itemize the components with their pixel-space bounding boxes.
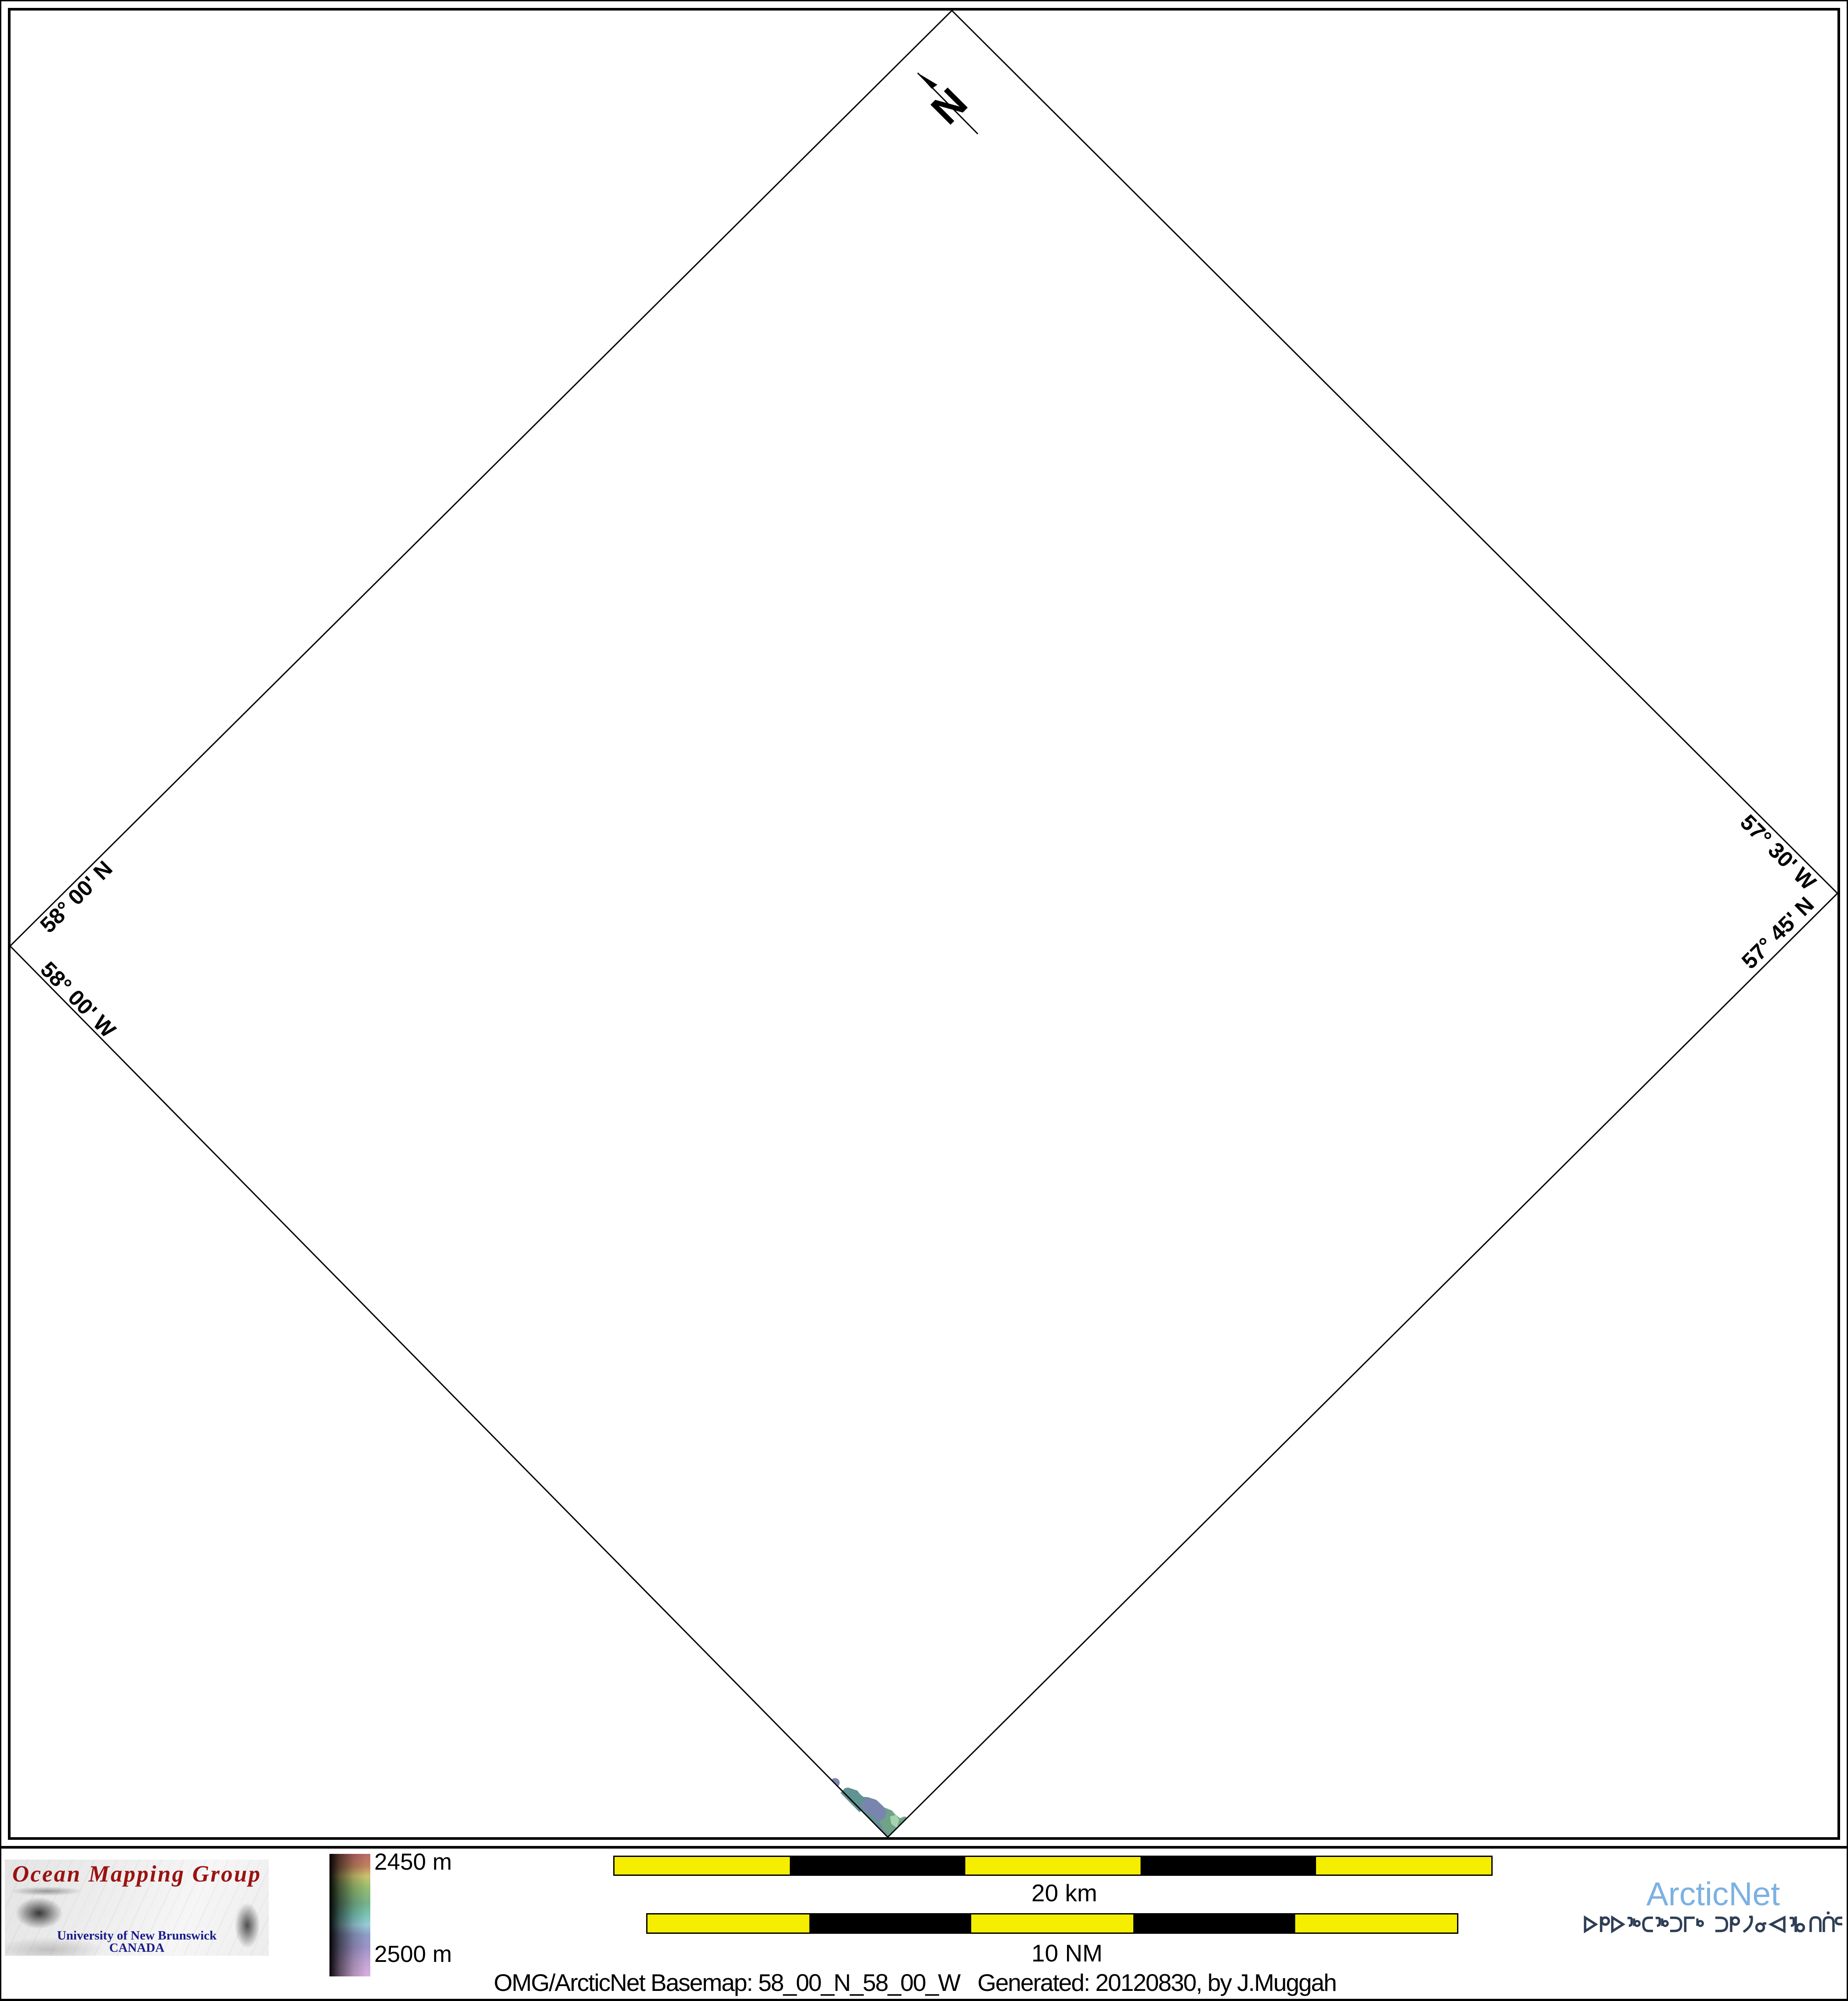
svg-text:58° 00' W: 58° 00' W <box>36 957 120 1043</box>
svg-text:N: N <box>922 79 976 133</box>
svg-text:57° 30' W: 57° 30' W <box>1736 810 1821 895</box>
svg-text:57° 45' N: 57° 45' N <box>1737 892 1819 974</box>
svg-text:58° 00' N: 58° 00' N <box>35 856 117 938</box>
